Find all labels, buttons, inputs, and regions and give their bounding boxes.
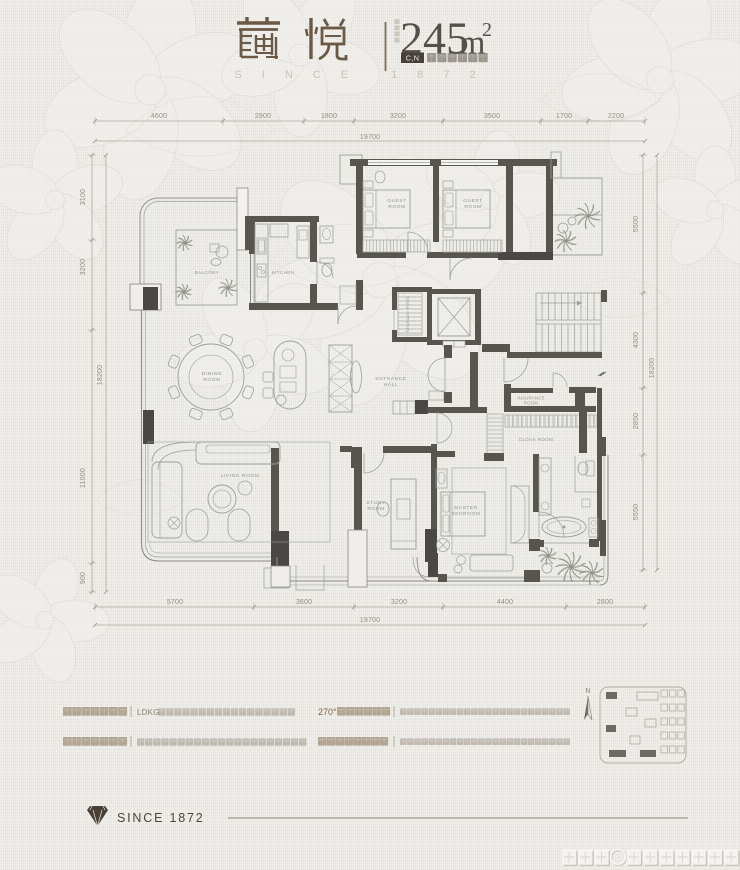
svg-text:DINING: DINING bbox=[202, 371, 222, 377]
svg-text:ROOM: ROOM bbox=[367, 506, 384, 512]
svg-text:LIVING ROOM: LIVING ROOM bbox=[221, 473, 260, 479]
svg-text:1800: 1800 bbox=[321, 113, 337, 120]
svg-text:4600: 4600 bbox=[151, 113, 167, 120]
svg-text:4400: 4400 bbox=[497, 599, 513, 606]
svg-text:3600: 3600 bbox=[296, 599, 312, 606]
svg-text:2800: 2800 bbox=[597, 599, 613, 606]
svg-text:3200: 3200 bbox=[390, 113, 406, 120]
svg-text:GUEST: GUEST bbox=[463, 198, 483, 204]
svg-text:C,N: C,N bbox=[406, 54, 420, 63]
svg-text:LDKG: LDKG bbox=[137, 708, 160, 717]
svg-text:270°: 270° bbox=[318, 707, 337, 717]
svg-text:ROOM: ROOM bbox=[203, 377, 220, 383]
svg-text:ROOM: ROOM bbox=[524, 401, 538, 406]
svg-text:3200: 3200 bbox=[80, 259, 87, 275]
svg-text:2850: 2850 bbox=[633, 413, 640, 429]
svg-text:18200: 18200 bbox=[649, 358, 656, 378]
svg-text:19700: 19700 bbox=[360, 617, 380, 624]
svg-text:KITCHEN: KITCHEN bbox=[272, 270, 295, 275]
svg-text:5700: 5700 bbox=[167, 599, 183, 606]
svg-text:5500: 5500 bbox=[633, 216, 640, 232]
svg-text:STORAGE ROOM: STORAGE ROOM bbox=[405, 296, 410, 333]
svg-text:19700: 19700 bbox=[360, 134, 380, 141]
svg-text:3200: 3200 bbox=[391, 599, 407, 606]
svg-text:1700: 1700 bbox=[556, 113, 572, 120]
svg-text:GUEST: GUEST bbox=[387, 198, 407, 204]
svg-text:BALCONY: BALCONY bbox=[195, 270, 219, 275]
svg-text:4300: 4300 bbox=[633, 332, 640, 348]
svg-text:MASTER: MASTER bbox=[454, 505, 478, 511]
svg-text:3500: 3500 bbox=[484, 113, 500, 120]
svg-text:11000: 11000 bbox=[80, 468, 87, 488]
svg-text:18200: 18200 bbox=[97, 365, 104, 385]
svg-text:HALL: HALL bbox=[384, 382, 398, 388]
svg-text:BEDROOM: BEDROOM bbox=[452, 511, 481, 517]
svg-text:SINCE 1872: SINCE 1872 bbox=[117, 811, 204, 825]
svg-text:N: N bbox=[585, 688, 590, 695]
svg-text:ROOM: ROOM bbox=[464, 204, 481, 210]
svg-text:ROOM: ROOM bbox=[388, 204, 405, 210]
svg-text:5550: 5550 bbox=[633, 504, 640, 520]
svg-text:900: 900 bbox=[80, 572, 87, 584]
svg-text:ENTRANCE: ENTRANCE bbox=[375, 376, 406, 382]
svg-text:2: 2 bbox=[482, 19, 492, 41]
svg-text:CLOAK ROOM: CLOAK ROOM bbox=[519, 437, 554, 442]
svg-text:2900: 2900 bbox=[255, 113, 271, 120]
svg-text:SINCE 1872: SINCE 1872 bbox=[234, 69, 495, 81]
svg-text:2200: 2200 bbox=[608, 113, 624, 120]
svg-text:3100: 3100 bbox=[80, 189, 87, 205]
svg-text:STUDY: STUDY bbox=[366, 500, 385, 506]
